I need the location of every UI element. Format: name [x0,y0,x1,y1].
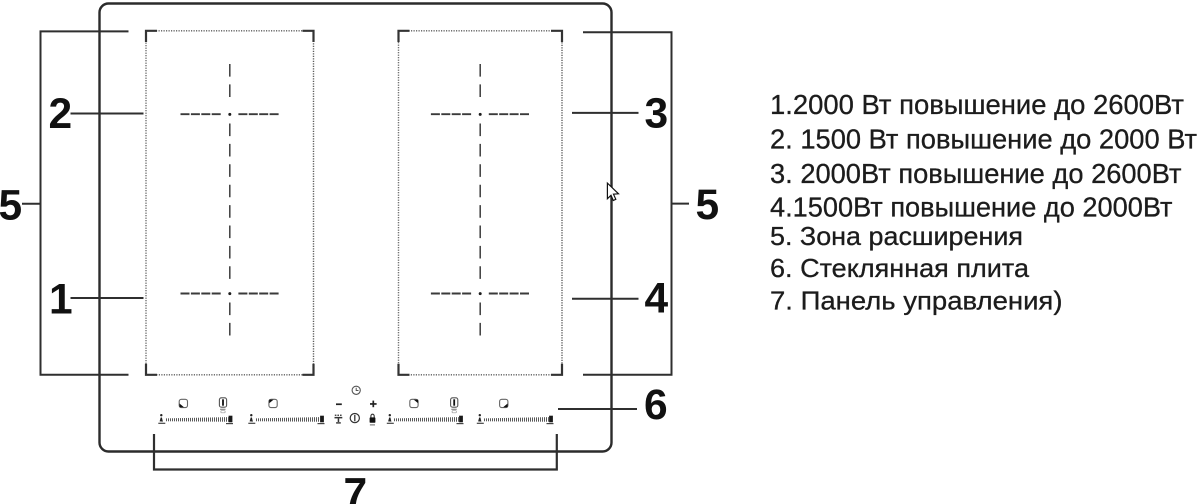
svg-text:3: 3 [645,90,669,137]
svg-text:3. 2000Вт повышение до 2600Вт: 3. 2000Вт повышение до 2600Вт [770,158,1182,189]
svg-text:1: 1 [49,277,73,324]
svg-text:4.1500Вт повышение до 2000Вт: 4.1500Вт повышение до 2000Вт [770,192,1173,223]
svg-text:2. 1500 Вт повышение до 2000 В: 2. 1500 Вт повышение до 2000 Вт [770,123,1197,154]
svg-text:2: 2 [49,91,73,138]
svg-text:5: 5 [696,182,720,229]
svg-text:7. Панель управления): 7. Панель управления) [770,285,1063,315]
svg-text:6. Стеклянная плита: 6. Стеклянная плита [770,253,1030,283]
svg-text:5: 5 [0,182,22,229]
svg-text:5. Зона расширения: 5. Зона расширения [770,221,1023,251]
svg-text:4: 4 [645,275,669,322]
svg-text:7: 7 [344,471,368,504]
svg-text:1.2000 Вт повышение до 2600Вт: 1.2000 Вт повышение до 2600Вт [770,89,1184,120]
svg-text:6: 6 [644,382,668,429]
